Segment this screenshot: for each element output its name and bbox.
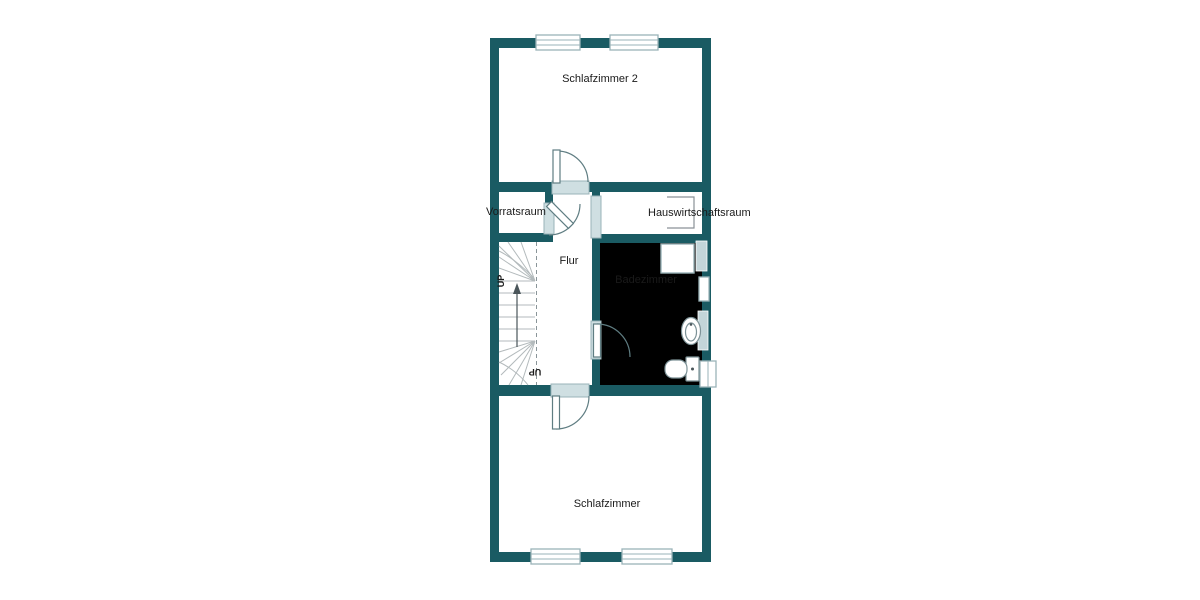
room-label-schlafzimmer: Schlafzimmer: [537, 498, 677, 510]
room-label-hauswirtschaftsraum: Hauswirtschaftsraum: [648, 207, 751, 219]
stairs-up-label: UP: [496, 275, 506, 288]
wall-mid-upper: [490, 182, 711, 192]
window-bath-upper: [699, 277, 709, 301]
threshold-hauswirtschaftsraum: [591, 196, 601, 238]
wall-mid-lower: [490, 385, 711, 396]
wall-outer-top: [490, 38, 711, 48]
door-schlafzimmer2: [553, 150, 588, 183]
window-bottom-right: [622, 549, 672, 564]
toilet-icon: [665, 357, 699, 381]
wall-bathroom-top: [592, 234, 711, 243]
wall-outer-left: [490, 38, 499, 562]
window-top-right: [610, 35, 658, 50]
door-schlafzimmer: [553, 396, 590, 429]
floorplan-canvas: UP UP Schlafzimmer 2 Vorratsraum Hauswir…: [0, 0, 1200, 600]
shower-icon: [661, 244, 694, 273]
window-bath-lower: [700, 361, 716, 387]
window-bottom-left: [531, 549, 580, 564]
staircase: UP UP: [496, 242, 541, 385]
floorplan-drawing: UP UP: [0, 0, 1200, 600]
radiator-upper-icon: [696, 241, 707, 271]
room-label-badezimmer: Badezimmer: [596, 274, 696, 286]
sink-icon: [682, 318, 701, 345]
stairs-down-label: UP: [529, 367, 542, 377]
room-label-flur: Flur: [544, 255, 594, 267]
window-top-left: [536, 35, 580, 50]
threshold-schlafzimmer: [551, 384, 589, 397]
room-label-schlafzimmer2: Schlafzimmer 2: [530, 73, 670, 85]
room-label-vorratsraum: Vorratsraum: [486, 206, 546, 218]
wall-outer-bottom: [490, 552, 711, 562]
